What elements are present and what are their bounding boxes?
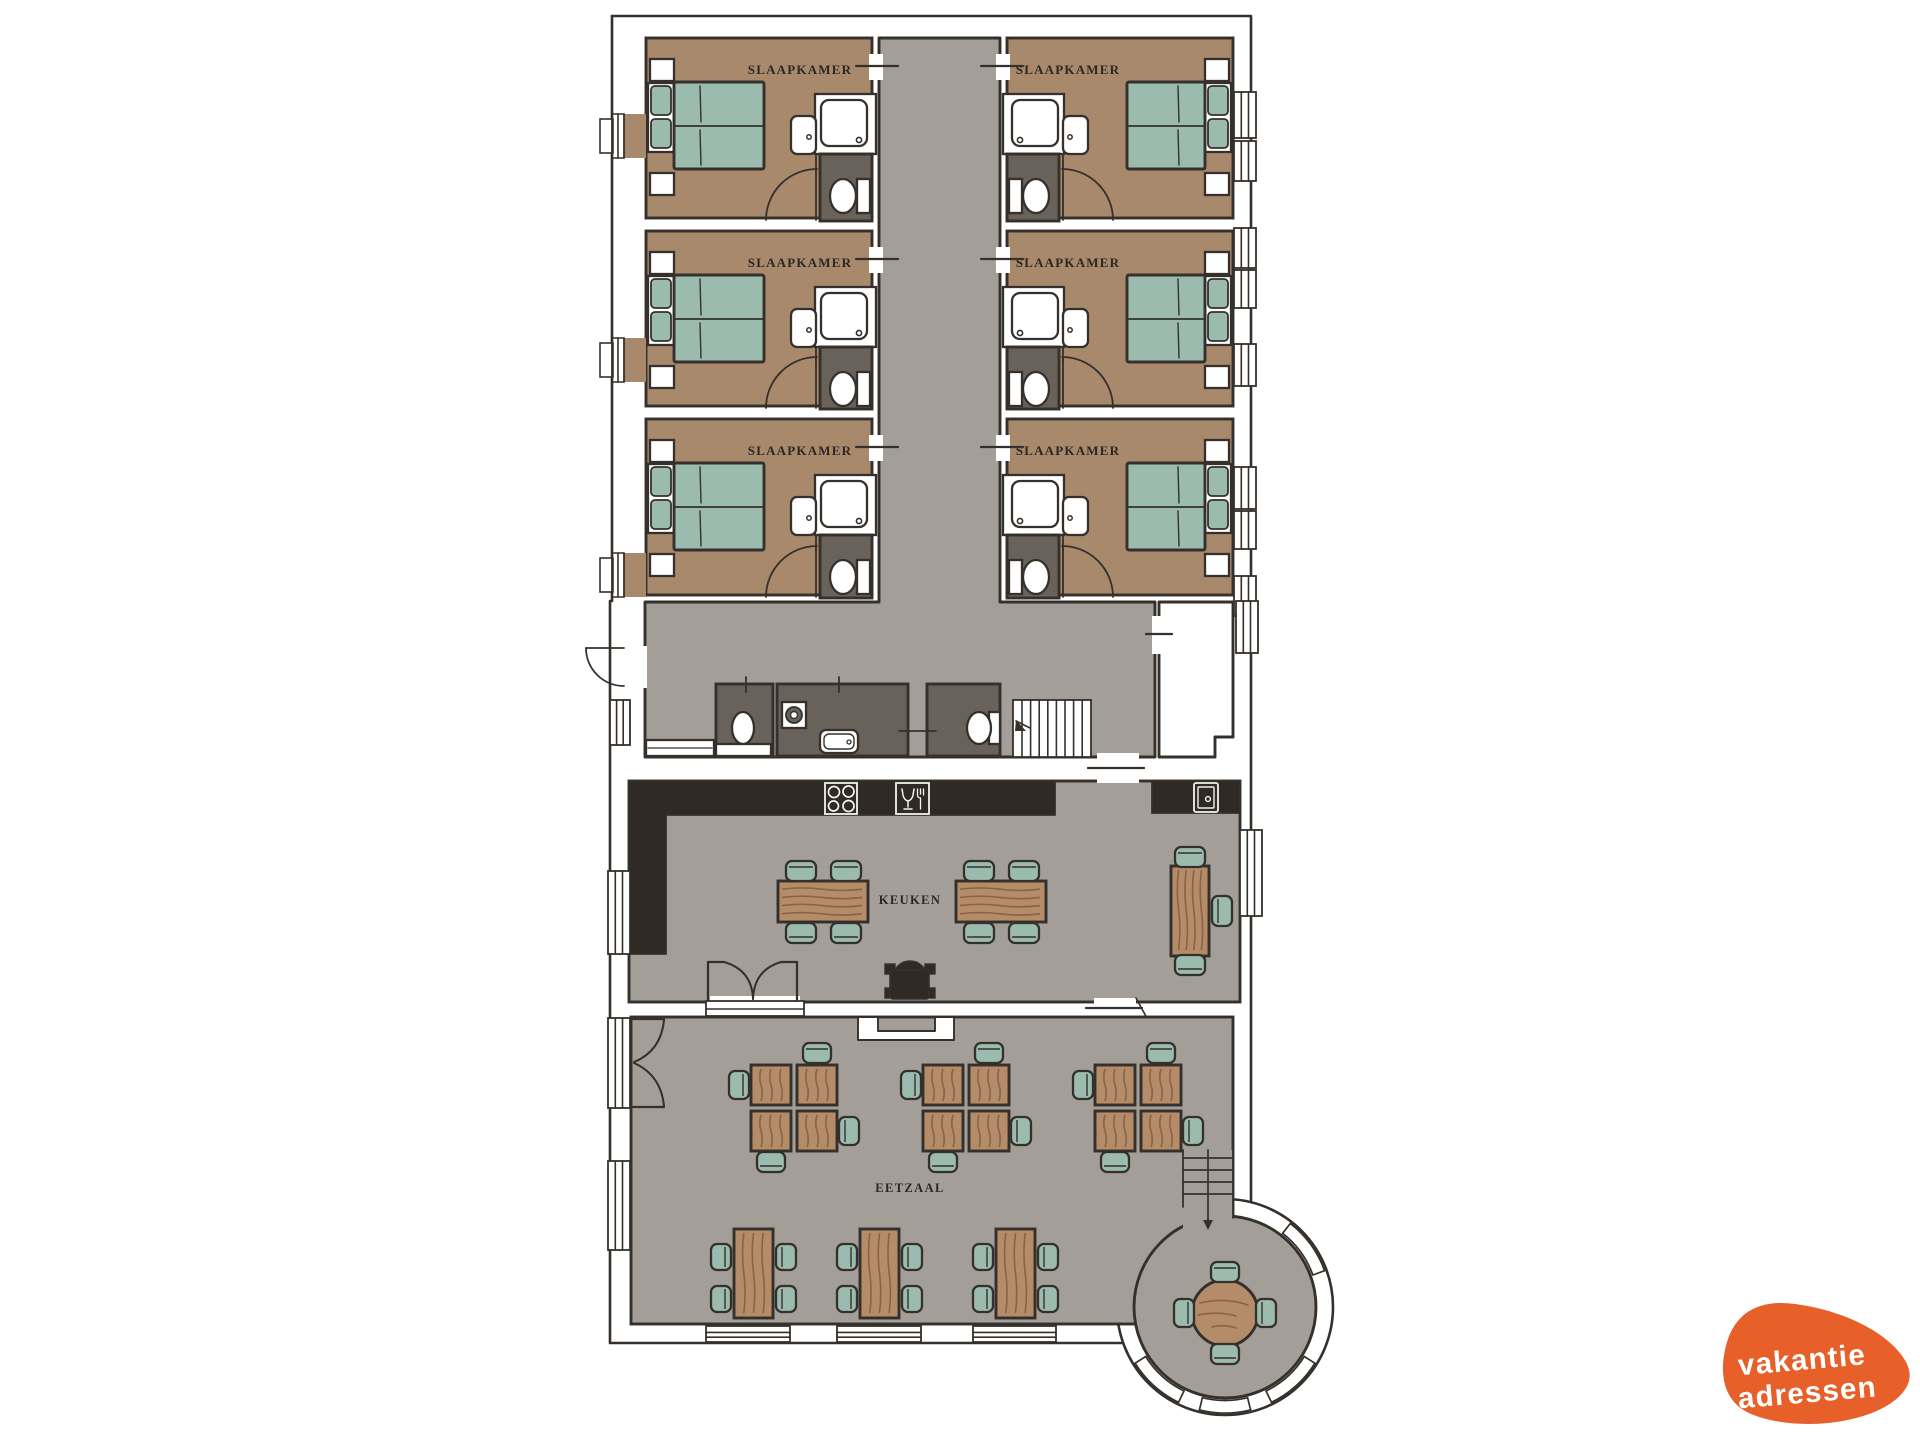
svg-text:SLAAPKAMER: SLAAPKAMER: [1016, 62, 1120, 77]
svg-text:SLAAPKAMER: SLAAPKAMER: [748, 443, 852, 458]
svg-text:SLAAPKAMER: SLAAPKAMER: [748, 62, 852, 77]
svg-text:KEUKEN: KEUKEN: [879, 893, 942, 907]
svg-text:SLAAPKAMER: SLAAPKAMER: [1016, 255, 1120, 270]
svg-text:SLAAPKAMER: SLAAPKAMER: [1016, 443, 1120, 458]
svg-text:SLAAPKAMER: SLAAPKAMER: [748, 255, 852, 270]
svg-text:EETZAAL: EETZAAL: [875, 1181, 945, 1195]
